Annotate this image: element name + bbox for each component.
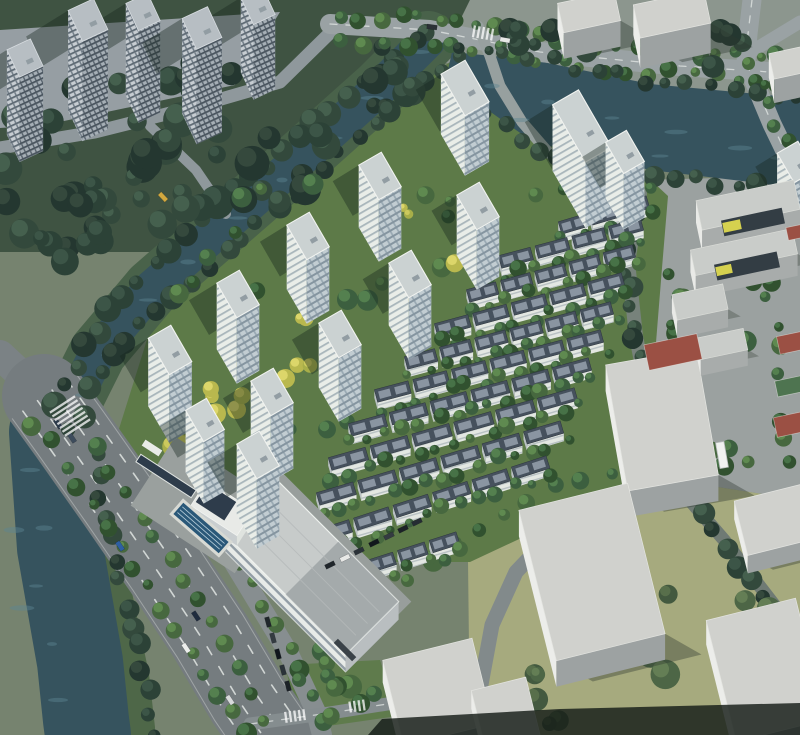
aerial-rendering-stage: Aerial rendering of riverside residentia… [0,0,800,735]
site-aerial-rendering [0,0,800,735]
